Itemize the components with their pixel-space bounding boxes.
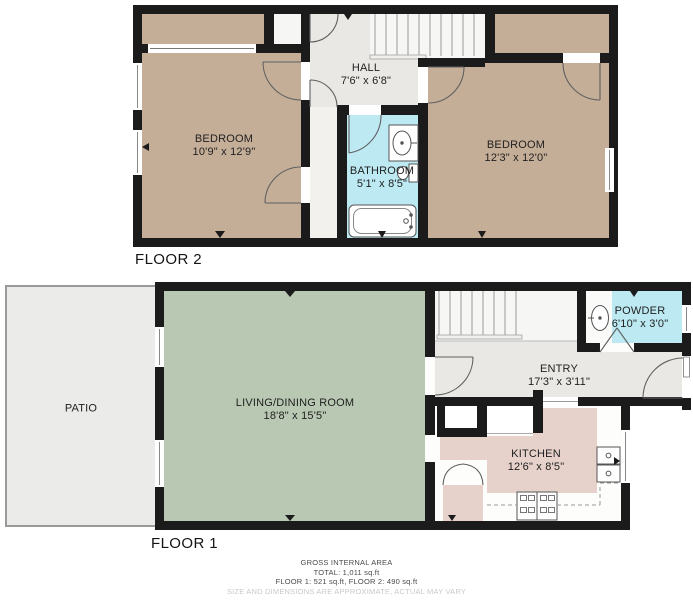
staircase-floor2 xyxy=(370,14,485,58)
size-disclaimer: SIZE AND DIMENSIONS ARE APPROXIMATE, ACT… xyxy=(0,587,693,597)
room-name: BEDROOM xyxy=(195,133,253,145)
per-floor-area: FLOOR 1: 521 sq.ft, FLOOR 2: 490 sq.ft xyxy=(0,577,693,587)
room-label-entry: ENTRY 17'3" x 3'11" xyxy=(528,363,590,389)
room-label-hall: HALL 7'6" x 6'8" xyxy=(341,62,391,88)
gross-area-title: GROSS INTERNAL AREA xyxy=(0,558,693,568)
room-dims: 12'6" x 8'5" xyxy=(508,461,565,474)
room-label-bedroom-right: BEDROOM 12'3" x 12'0" xyxy=(485,139,548,165)
room-dims: 17'3" x 3'11" xyxy=(528,376,590,389)
room-label-powder: POWDER 6'10" x 3'0" xyxy=(612,305,669,331)
closet-topleft xyxy=(142,14,264,44)
room-dims: 7'6" x 6'8" xyxy=(341,75,391,88)
kitchen-floor xyxy=(440,433,487,460)
washer-dryer-icon xyxy=(597,447,620,482)
staircase-floor1 xyxy=(435,291,577,341)
hall-strip xyxy=(310,107,337,238)
total-area: TOTAL: 1,011 sq.ft xyxy=(0,568,693,578)
room-name: BATHROOM xyxy=(350,165,414,177)
room-label-bedroom-left: BEDROOM 10'9" x 12'9" xyxy=(193,133,256,159)
closet-topright xyxy=(495,14,609,53)
sink-icon xyxy=(389,125,418,161)
entry-floor xyxy=(586,352,682,397)
room-dims: 12'3" x 12'0" xyxy=(485,152,548,165)
closet1-interior xyxy=(445,406,477,428)
room-name: POWDER xyxy=(615,305,666,317)
closet2-interior xyxy=(487,406,533,433)
room-label-kitchen: KITCHEN 12'6" x 8'5" xyxy=(508,448,565,474)
room-name: ENTRY xyxy=(540,363,578,375)
stove-icon xyxy=(517,492,557,520)
floor2-floorplan xyxy=(133,5,618,247)
room-name: LIVING/DINING ROOM xyxy=(236,397,355,409)
room-label-patio: PATIO xyxy=(65,403,97,416)
room-name: PATIO xyxy=(65,403,97,415)
room-dims: 6'10" x 3'0" xyxy=(612,318,669,331)
room-name: BEDROOM xyxy=(487,139,545,151)
floorplan-page: BEDROOM 10'9" x 12'9" HALL 7'6" x 6'8" B… xyxy=(0,0,693,600)
room-name: KITCHEN xyxy=(511,448,561,460)
floor1-label: FLOOR 1 xyxy=(151,535,218,552)
room-label-bathroom: BATHROOM 5'1" x 8'5" xyxy=(350,165,414,191)
room-label-living-dining: LIVING/DINING ROOM 18'8" x 15'5" xyxy=(236,397,355,423)
area-summary: GROSS INTERNAL AREA TOTAL: 1,011 sq.ft F… xyxy=(0,558,693,596)
room-dims: 18'8" x 15'5" xyxy=(236,410,355,423)
room-dims: 5'1" x 8'5" xyxy=(350,178,414,191)
room-name: HALL xyxy=(352,62,380,74)
floor2-label: FLOOR 2 xyxy=(135,251,202,268)
room-dims: 10'9" x 12'9" xyxy=(193,146,256,159)
